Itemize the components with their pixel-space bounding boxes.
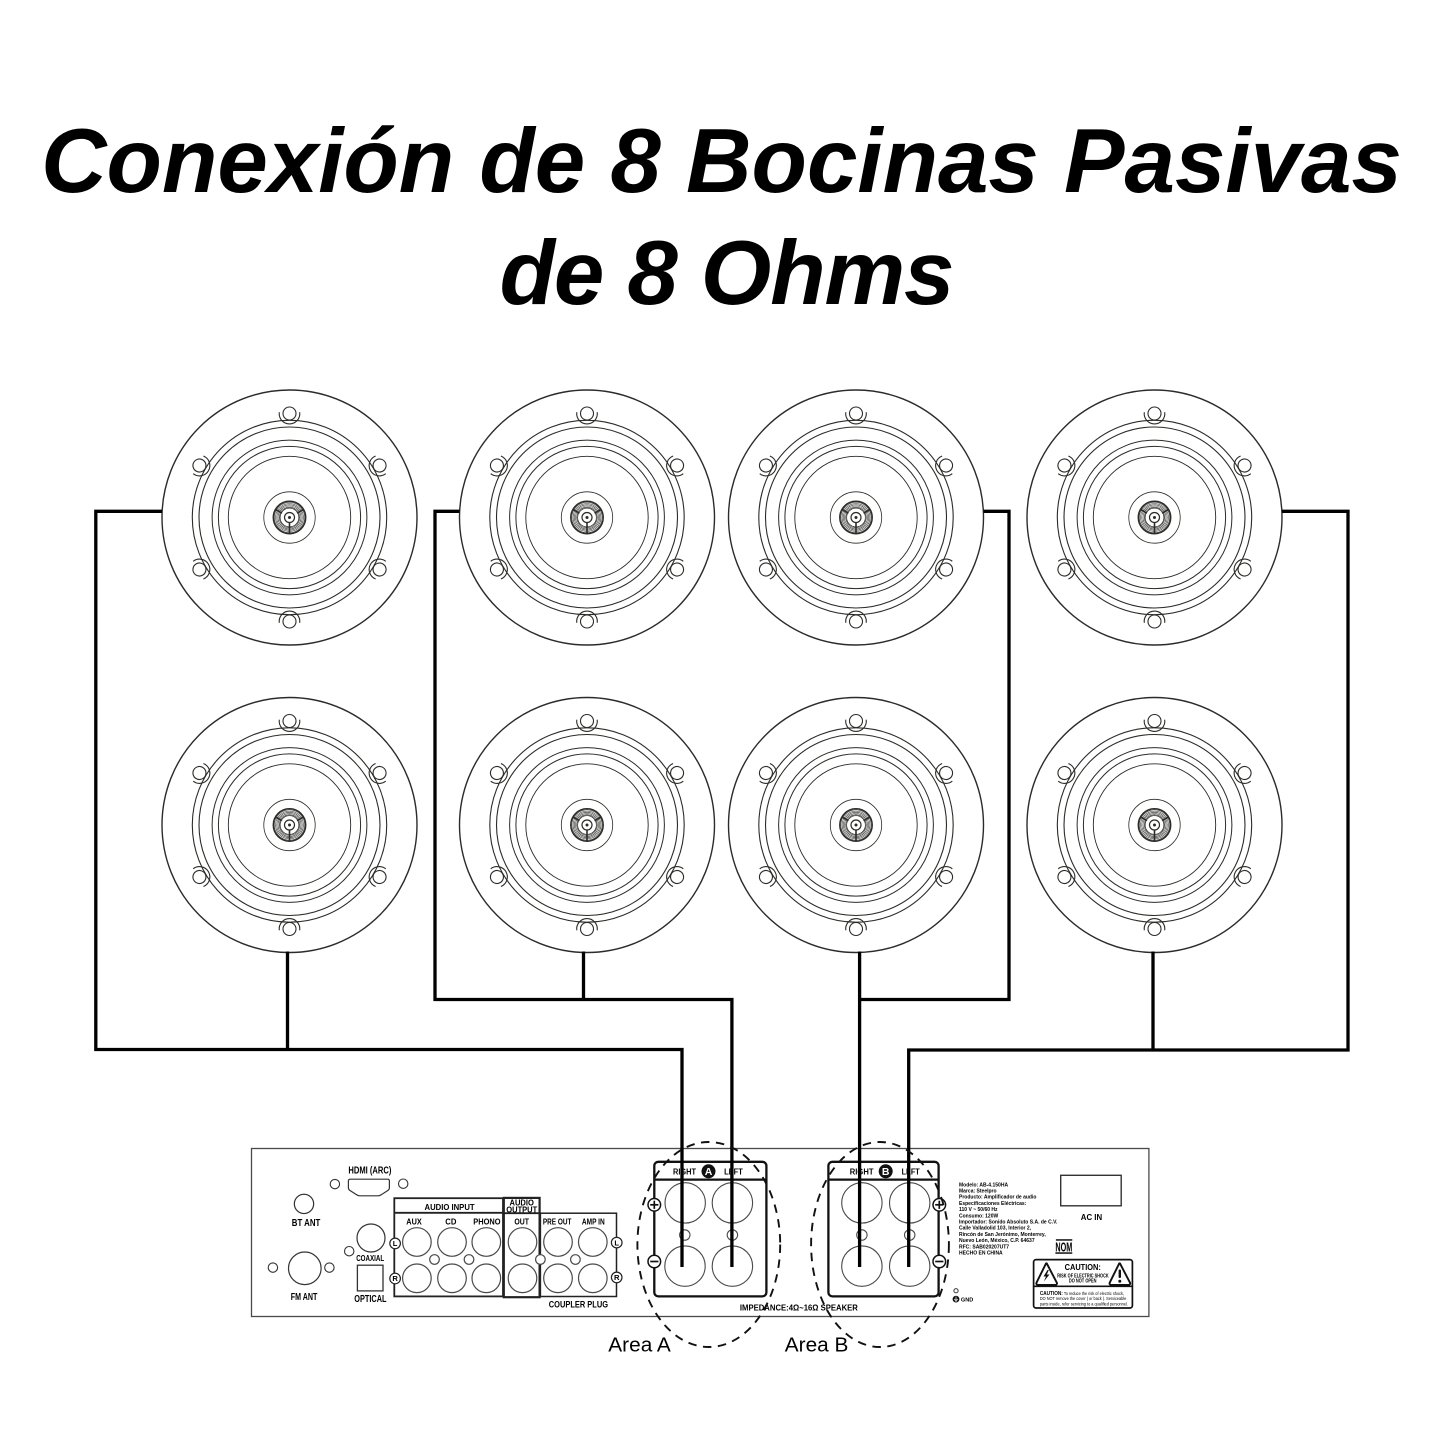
svg-text:GND: GND (961, 1298, 973, 1304)
svg-text:OPTICAL: OPTICAL (354, 1294, 386, 1305)
svg-text:AUDIO INPUT: AUDIO INPUT (425, 1202, 476, 1212)
svg-text:COAXIAL: COAXIAL (356, 1253, 384, 1263)
svg-text:PRE OUT: PRE OUT (543, 1216, 572, 1226)
svg-text:Area A: Area A (608, 1333, 671, 1356)
svg-text:FM ANT: FM ANT (291, 1292, 318, 1303)
svg-text:LEFT: LEFT (724, 1167, 743, 1176)
svg-text:HECHO EN CHINA: HECHO EN CHINA (959, 1250, 1003, 1256)
svg-text:de 8 Ohms: de 8 Ohms (500, 223, 954, 324)
svg-text:CD: CD (445, 1216, 456, 1226)
svg-text:A: A (705, 1166, 713, 1178)
svg-text:NOM: NOM (1055, 1241, 1072, 1255)
svg-text:parts inside, refer servicing: parts inside, refer servicing to a quali… (1040, 1301, 1128, 1306)
svg-text:R: R (614, 1273, 620, 1282)
svg-text:Conexión de 8 Bocinas Pasivas: Conexión de 8 Bocinas Pasivas (41, 111, 1402, 212)
svg-text:Area B: Area B (785, 1333, 849, 1356)
svg-text:OUTPUT: OUTPUT (506, 1204, 538, 1214)
svg-text:B: B (882, 1166, 890, 1178)
svg-text:COUPLER PLUG: COUPLER PLUG (549, 1300, 608, 1310)
svg-text:RIGHT: RIGHT (673, 1167, 696, 1176)
svg-text:PHONO: PHONO (473, 1216, 501, 1226)
svg-text:R: R (392, 1274, 398, 1283)
svg-text:BT ANT: BT ANT (292, 1218, 321, 1229)
svg-text:AC IN: AC IN (1081, 1212, 1102, 1222)
svg-text:CAUTION:: CAUTION: (1065, 1263, 1101, 1272)
svg-text:OUT: OUT (514, 1216, 529, 1226)
svg-text:L: L (614, 1238, 619, 1247)
svg-text:L: L (393, 1239, 398, 1248)
svg-text:AUX: AUX (406, 1216, 422, 1226)
svg-text:IMPEDANCE:4Ω~16Ω SPEAKER: IMPEDANCE:4Ω~16Ω SPEAKER (740, 1304, 858, 1313)
svg-text:DO NOT OPEN: DO NOT OPEN (1069, 1279, 1097, 1285)
svg-text:AMP IN: AMP IN (582, 1216, 605, 1226)
svg-text:LEFT: LEFT (902, 1167, 920, 1176)
svg-text:RIGHT: RIGHT (850, 1167, 874, 1176)
svg-text:HDMI (ARC): HDMI (ARC) (348, 1166, 391, 1177)
